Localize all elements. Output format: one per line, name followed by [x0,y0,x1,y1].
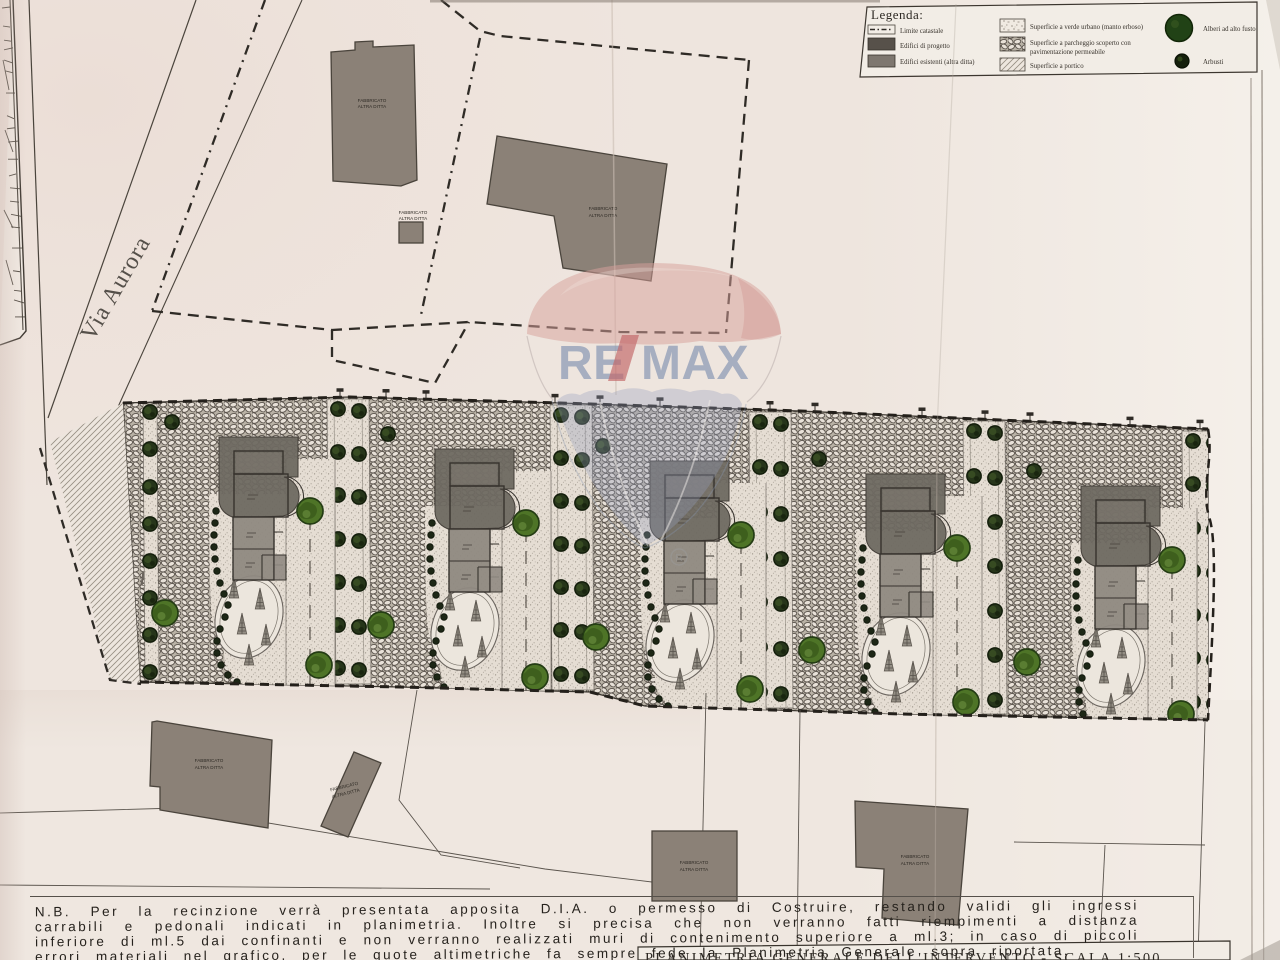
svg-text:Edifici esistenti (altra ditta: Edifici esistenti (altra ditta) [900,59,975,66]
svg-text:Superficie a verde urbano (man: Superficie a verde urbano (manto erboso) [1030,24,1143,31]
svg-text:Arbusti: Arbusti [1203,59,1224,66]
svg-text:FABBRICATO: FABBRICATO [901,854,930,859]
svg-text:ALTRA DITTA: ALTRA DITTA [901,861,930,866]
svg-text:Alberi ad alto fusto: Alberi ad alto fusto [1203,26,1256,33]
svg-text:Superficie a parcheggio scoper: Superficie a parcheggio scoperto con [1030,40,1131,47]
svg-text:pavimentazione permeabile: pavimentazione permeabile [1030,49,1105,56]
svg-text:Superficie a portico: Superficie a portico [1030,63,1084,70]
svg-text:ALTRA DITTA: ALTRA DITTA [358,104,387,109]
svg-text:FABBRICATO: FABBRICATO [358,98,387,103]
svg-text:FABBRICATO: FABBRICATO [680,860,709,865]
svg-text:ALTRA DITTA: ALTRA DITTA [399,216,428,221]
svg-text:ALTRA DITTA: ALTRA DITTA [195,765,224,770]
svg-text:FABBRICATO: FABBRICATO [195,758,224,763]
svg-text:MAX: MAX [641,337,749,390]
svg-text:Edifici di progetto: Edifici di progetto [900,43,950,50]
svg-text:Legenda:: Legenda: [871,7,923,22]
svg-text:FABBRICATO: FABBRICATO [399,210,428,215]
svg-text:R: R [675,553,682,564]
svg-text:ALTRA DITTA: ALTRA DITTA [680,867,709,872]
svg-text:Limite catastale: Limite catastale [900,28,943,35]
